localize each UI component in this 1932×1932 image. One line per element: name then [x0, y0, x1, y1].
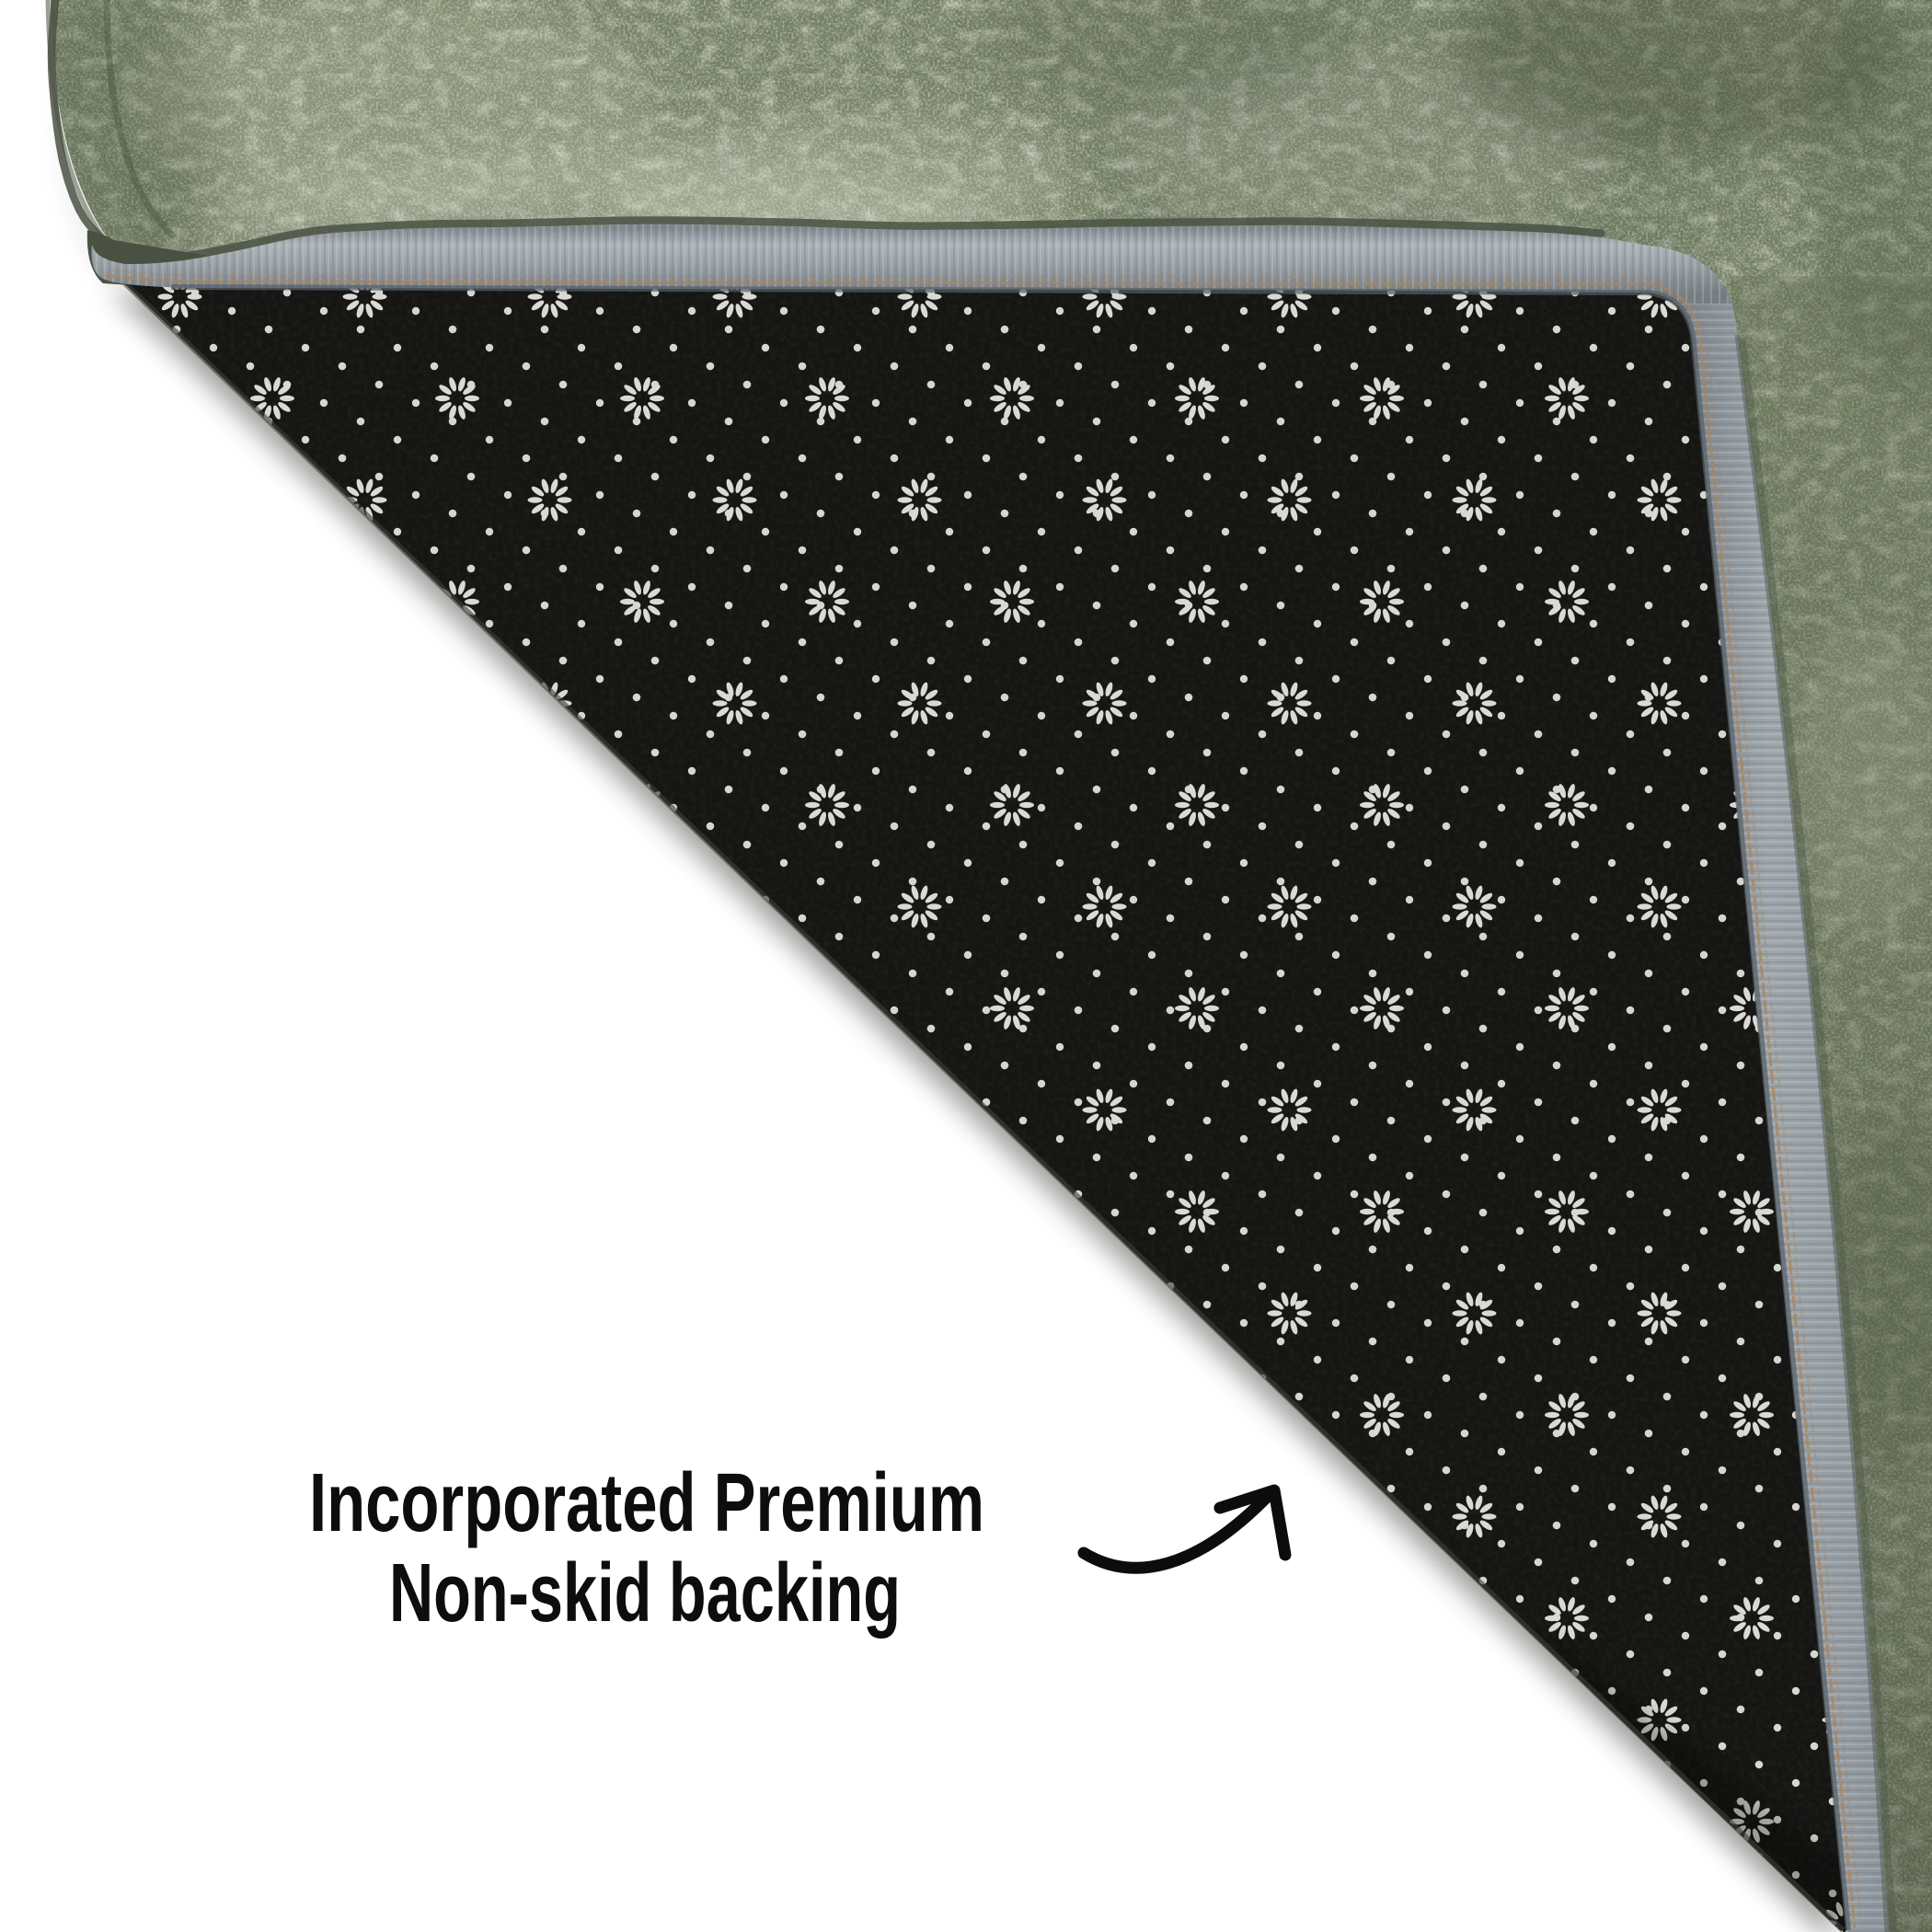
svg-text:Incorporated Premium: Incorporated Premium	[309, 1457, 984, 1549]
svg-text:Non-skid backing: Non-skid backing	[389, 1547, 901, 1639]
